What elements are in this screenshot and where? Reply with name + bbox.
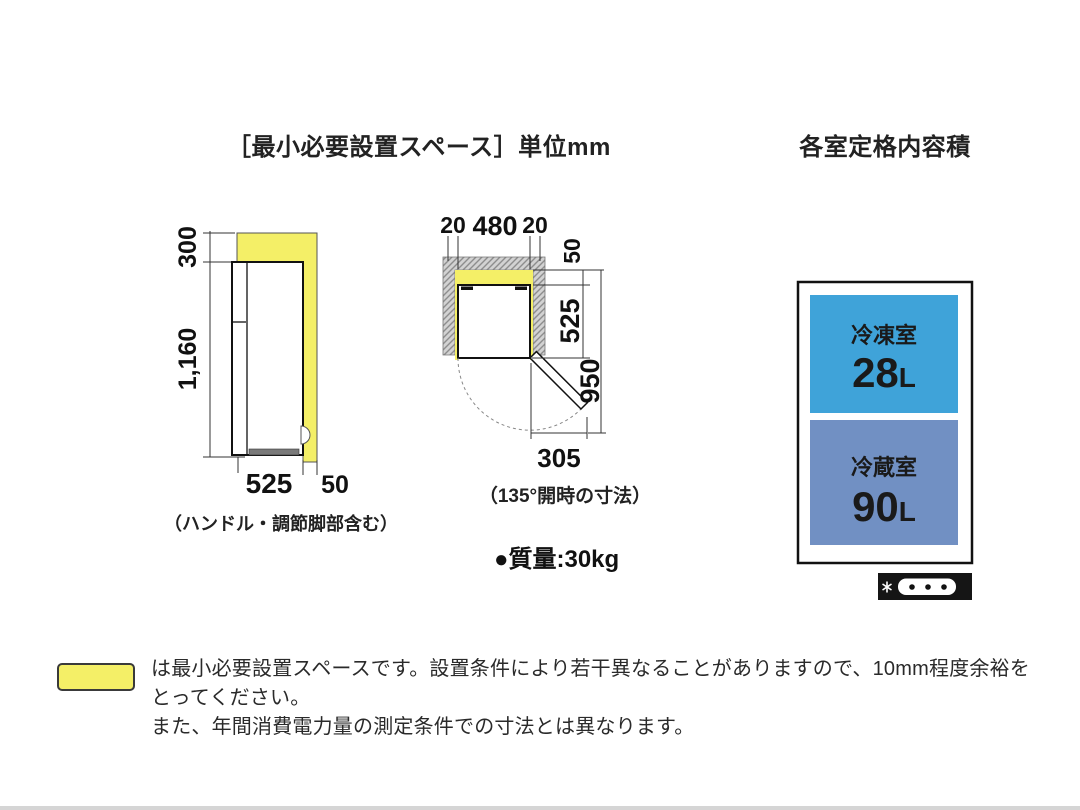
dim-label-width: 525 bbox=[246, 468, 293, 499]
door-swing-arc bbox=[458, 358, 581, 430]
top-view-diagram: 20 480 20 50 525 950 305 （135°開時の寸法） ●質量… bbox=[420, 205, 670, 585]
dim-label-top-clearance: 300 bbox=[174, 226, 202, 268]
capacity-diagram: 冷凍室 28L 冷蔵室 90L bbox=[790, 275, 985, 605]
fridge-capacity-unit: L bbox=[899, 496, 916, 527]
fridge-base-strip bbox=[249, 449, 299, 455]
dim-label-height: 1,160 bbox=[174, 328, 202, 391]
freezer-label: 冷凍室 bbox=[851, 323, 917, 348]
dim-label-rear-gap: 50 bbox=[559, 238, 585, 264]
control-label-bar bbox=[878, 573, 972, 600]
dim-label-rear-clearance: 50 bbox=[321, 471, 349, 499]
fridge-outline-top bbox=[458, 285, 530, 358]
hinge-mark-left bbox=[461, 287, 473, 291]
fridge-capacity-value: 90 bbox=[852, 483, 899, 530]
dim-label-width-top: 480 bbox=[472, 211, 517, 241]
side-view-diagram: 300 1,160 525 50 （ハンドル・調節脚部含む） bbox=[165, 205, 415, 550]
fridge-label: 冷蔵室 bbox=[851, 455, 917, 480]
spec-sheet: ［最小必要設置スペース］単位mm 各室定格内容積 300 1,160 525 5… bbox=[0, 0, 1080, 810]
dim-label-total-depth: 950 bbox=[575, 358, 605, 403]
freezer-capacity-value: 28 bbox=[852, 349, 899, 396]
top-view-caption: （135°開時の寸法） bbox=[479, 484, 651, 507]
side-view-caption: （ハンドル・調節脚部含む） bbox=[164, 513, 398, 534]
dim-label-left-gap: 20 bbox=[440, 212, 466, 238]
clearance-swatch bbox=[57, 663, 135, 691]
legend-line2: また、年間消費電力量の測定条件での寸法とは異なります。 bbox=[151, 713, 1037, 742]
dim-label-right-gap: 20 bbox=[522, 212, 548, 238]
mass-label: ●質量:30kg bbox=[494, 546, 619, 573]
bottom-edge-bar bbox=[0, 806, 1080, 810]
dim-label-door-open: 305 bbox=[537, 443, 580, 473]
dim-label-depth: 525 bbox=[555, 298, 585, 343]
legend-text: は最小必要設置スペースです。設置条件により若干異なることがありますので、10mm… bbox=[151, 655, 1037, 742]
legend: は最小必要設置スペースです。設置条件により若干異なることがありますので、10mm… bbox=[57, 655, 1037, 742]
hinge-mark-right bbox=[515, 287, 527, 291]
fridge-outline-side bbox=[232, 262, 303, 455]
install-space-title: ［最小必要設置スペース］単位mm bbox=[227, 127, 611, 162]
legend-line1: は最小必要設置スペースです。設置条件により若干異なることがありますので、10mm… bbox=[151, 655, 1037, 713]
capacity-title: 各室定格内容積 bbox=[795, 127, 975, 162]
freezer-capacity-unit: L bbox=[899, 362, 916, 393]
